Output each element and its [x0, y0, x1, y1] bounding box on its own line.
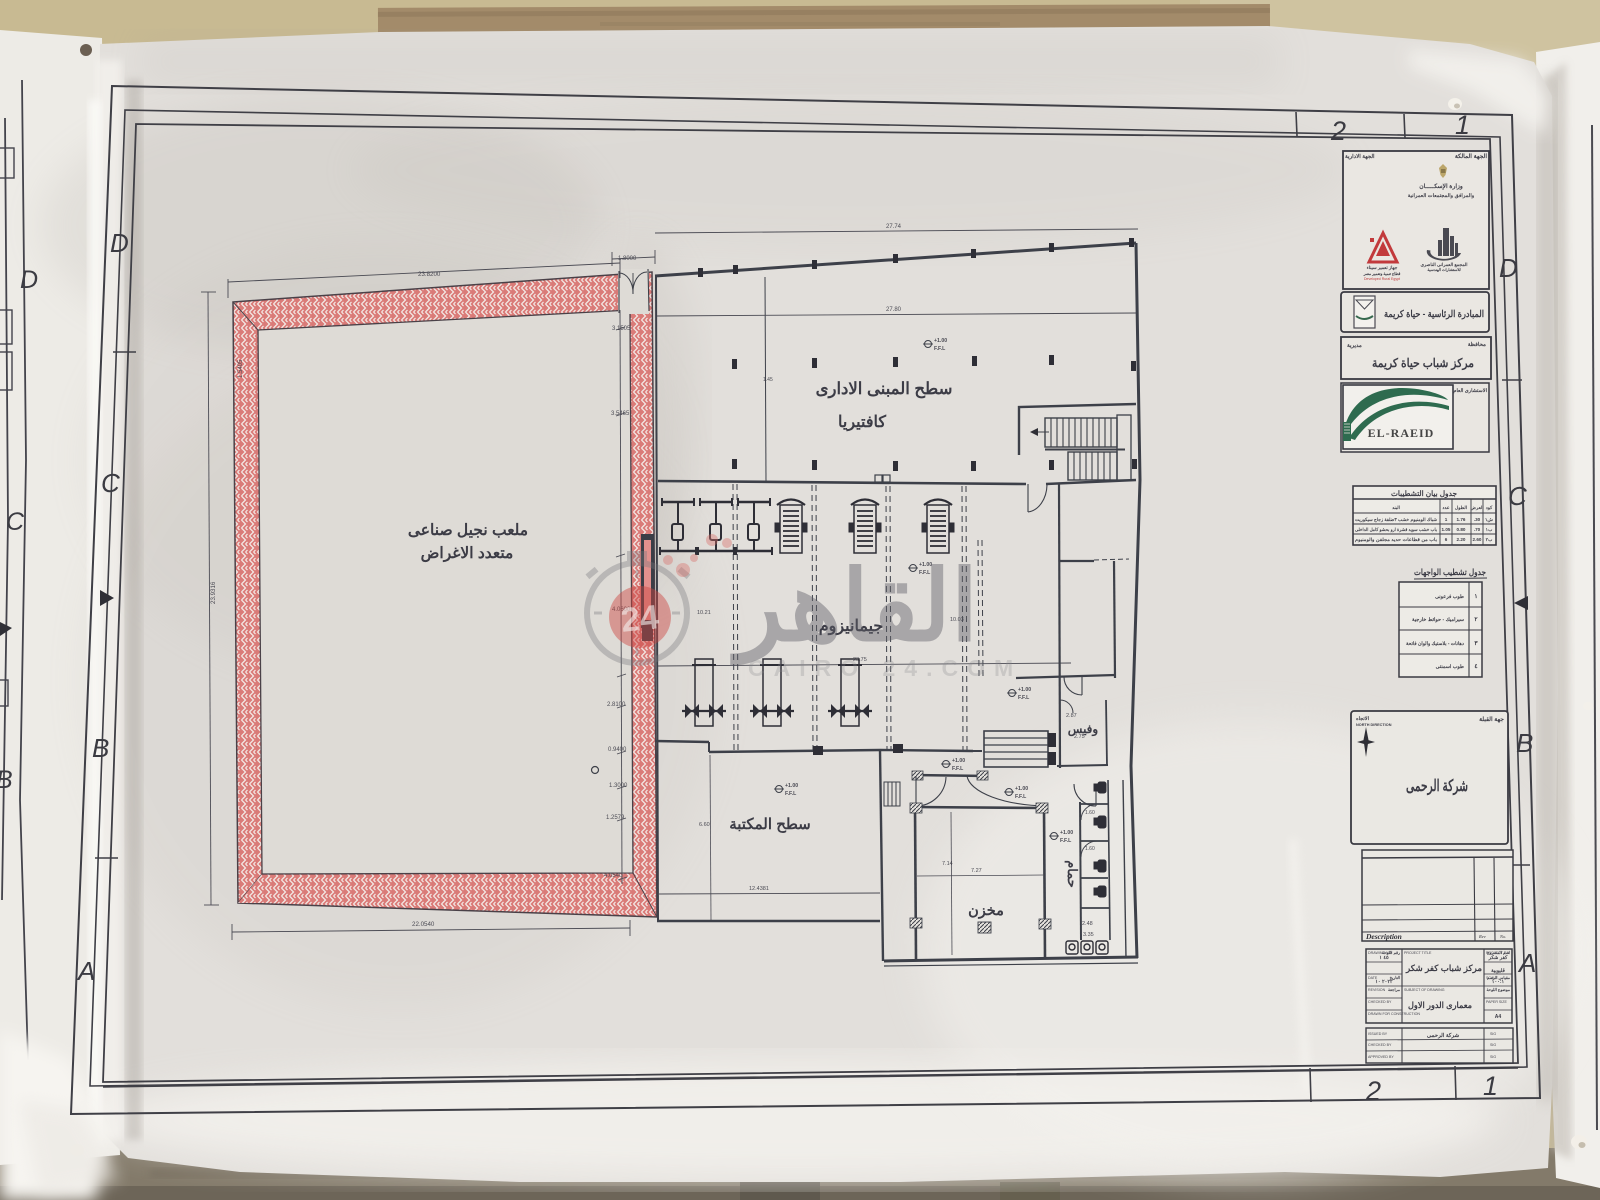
- svg-text:مركز شباب كفر شكر: مركز شباب كفر شكر: [1405, 963, 1482, 974]
- svg-text:PAPER SIZE: PAPER SIZE: [1486, 1000, 1508, 1004]
- svg-text:1: 1: [1455, 110, 1470, 140]
- svg-text:REVISION: REVISION: [1368, 988, 1386, 992]
- svg-text:SIG: SIG: [1490, 1032, 1496, 1036]
- svg-text:0.9400: 0.9400: [608, 747, 627, 753]
- svg-text:+1.00: +1.00: [1015, 786, 1028, 792]
- svg-text:Description: Description: [1365, 932, 1402, 941]
- svg-text:١٠٠:١: ١٠٠:١: [1492, 979, 1504, 985]
- svg-text:القاهر: القاهر: [730, 551, 978, 666]
- svg-text:محافظة: محافظة: [1468, 341, 1486, 348]
- svg-text:الاستشارى العام: الاستشارى العام: [1453, 388, 1487, 394]
- svg-text:2: 2: [1365, 1076, 1381, 1106]
- svg-text:2.75: 2.75: [1074, 734, 1085, 740]
- svg-text:متعدد الاغراض: متعدد الاغراض: [421, 545, 514, 563]
- svg-text:NORTH DIRECTION: NORTH DIRECTION: [1356, 723, 1392, 727]
- svg-text:1.60: 1.60: [1085, 846, 1095, 852]
- svg-text:C: C: [1508, 481, 1527, 511]
- svg-text:ملعب نجيل صناعى: ملعب نجيل صناعى: [408, 522, 528, 539]
- svg-text:F.F.L: F.F.L: [1060, 838, 1072, 844]
- svg-text:F.F.L: F.F.L: [785, 791, 797, 797]
- svg-text:23.8200: 23.8200: [418, 271, 441, 278]
- svg-text:كفر شكر: كفر شكر: [1488, 955, 1508, 961]
- svg-text:١: ١: [1474, 594, 1477, 600]
- svg-text:22.0540: 22.0540: [412, 921, 435, 928]
- svg-text:4.0540: 4.0540: [604, 873, 623, 879]
- svg-text:+1.00: +1.00: [785, 783, 798, 789]
- svg-text:1: 1: [1483, 1071, 1498, 1101]
- svg-text:والمرافق والمجتمعات العمرانية: والمرافق والمجتمعات العمرانية: [1408, 193, 1475, 199]
- svg-text:DRAWN FOR CONSTRUCTION: DRAWN FOR CONSTRUCTION: [1368, 1012, 1420, 1016]
- svg-text:23.9316: 23.9316: [210, 581, 217, 604]
- svg-text:1.2579: 1.2579: [606, 815, 625, 821]
- svg-text:Developed Rural Egypt: Developed Rural Egypt: [1364, 277, 1400, 281]
- svg-text:D: D: [20, 266, 38, 294]
- svg-text:.30: .30: [1474, 517, 1481, 522]
- svg-text:3.35: 3.35: [1083, 932, 1094, 938]
- svg-text:24: 24: [619, 598, 661, 640]
- svg-text:سيراميك - حوائط خارجية: سيراميك - حوائط خارجية: [1412, 617, 1464, 623]
- svg-text:شركة الرحمى: شركة الرحمى: [1427, 1032, 1460, 1039]
- svg-text:12.4381: 12.4381: [749, 886, 769, 892]
- svg-text:سطح المبنى الادارى: سطح المبنى الادارى: [816, 380, 953, 399]
- svg-text:1.05: 1.05: [1442, 527, 1451, 532]
- svg-text:CHECKED BY: CHECKED BY: [1368, 1043, 1392, 1047]
- svg-text:شركة الرحمى: شركة الرحمى: [1406, 778, 1468, 796]
- svg-text:7.14: 7.14: [942, 861, 953, 867]
- svg-text:الجهة الادارية: الجهة الادارية: [1345, 153, 1375, 160]
- svg-text:+1.00: +1.00: [952, 758, 965, 764]
- svg-text:F.F.L: F.F.L: [1015, 794, 1027, 800]
- svg-text:PROJECT TITLE: PROJECT TITLE: [1404, 951, 1432, 955]
- svg-text:A4: A4: [1495, 1014, 1502, 1020]
- svg-text:F.F.L: F.F.L: [934, 346, 946, 352]
- svg-text:مركز شباب حياة كريمة: مركز شباب حياة كريمة: [1372, 356, 1474, 371]
- svg-text:طوب اسمنتى: طوب اسمنتى: [1436, 664, 1464, 670]
- svg-text:D: D: [110, 228, 129, 258]
- svg-text:6.60: 6.60: [699, 822, 710, 828]
- svg-text:الاتجاه: الاتجاه: [1356, 716, 1370, 722]
- svg-text:3.5465: 3.5465: [611, 411, 630, 417]
- svg-text:2.20: 2.20: [1457, 537, 1466, 542]
- svg-text:+1.00: +1.00: [1018, 687, 1031, 693]
- svg-text:A: A: [1517, 948, 1536, 978]
- svg-text:27.74: 27.74: [886, 224, 902, 230]
- svg-text:2.60: 2.60: [1473, 537, 1482, 542]
- svg-text:1.60: 1.60: [1085, 810, 1095, 816]
- svg-text:Rev: Rev: [1478, 934, 1486, 939]
- svg-text:CHECKED BY: CHECKED BY: [1368, 1000, 1392, 1004]
- svg-text:كافتيريا: كافتيريا: [838, 414, 886, 432]
- svg-text:No.: No.: [1499, 934, 1506, 939]
- svg-text:الجهة المالكة: الجهة المالكة: [1455, 153, 1488, 160]
- svg-text:المبادرة الرئاسية - حياة كريمة: المبادرة الرئاسية - حياة كريمة: [1384, 309, 1484, 320]
- svg-text:٤٥ ١: ٤٥ ١: [1379, 955, 1389, 961]
- svg-text:ISSUED BY: ISSUED BY: [1368, 1032, 1388, 1036]
- svg-text:1.76: 1.76: [1457, 517, 1466, 522]
- svg-text:B: B: [0, 766, 13, 794]
- svg-text:2.8100: 2.8100: [607, 702, 626, 708]
- svg-text:1.8000: 1.8000: [618, 256, 637, 262]
- svg-text:SIG: SIG: [1490, 1055, 1496, 1059]
- svg-text:2.48: 2.48: [1082, 921, 1093, 927]
- svg-text:SUBJECT OF DRAWING: SUBJECT OF DRAWING: [1404, 988, 1445, 992]
- svg-text:6: 6: [1445, 537, 1448, 542]
- svg-text:B: B: [92, 733, 109, 763]
- svg-text:.70: .70: [1474, 527, 1481, 532]
- svg-text:SIG: SIG: [1490, 1043, 1496, 1047]
- svg-text:عدد: عدد: [1442, 505, 1449, 510]
- svg-text:2: 2: [1330, 116, 1346, 146]
- svg-text:معمارى الدور الاول: معمارى الدور الاول: [1408, 1000, 1472, 1011]
- svg-text:دهانات - بلاستيك والوان فاتحة: دهانات - بلاستيك والوان فاتحة: [1406, 641, 1465, 647]
- svg-text:B: B: [1516, 728, 1533, 758]
- svg-text:قليوبية: قليوبية: [1491, 968, 1505, 974]
- svg-text:طوب فرعونى: طوب فرعونى: [1435, 594, 1464, 600]
- svg-text:+1.00: +1.00: [934, 338, 947, 344]
- svg-text:حمام: حمام: [1064, 860, 1080, 888]
- svg-text:جدول بيان التشطيبات: جدول بيان التشطيبات: [1391, 489, 1457, 499]
- svg-text:27.80: 27.80: [886, 307, 902, 313]
- svg-text:0.80: 0.80: [1457, 527, 1466, 532]
- svg-text:+1.00: +1.00: [1060, 830, 1073, 836]
- svg-text:C: C: [6, 508, 25, 536]
- svg-text:مخزن: مخزن: [968, 903, 1004, 919]
- svg-text:مديرية: مديرية: [1347, 343, 1362, 349]
- svg-text:٢٠٢٢ ١٠: ٢٠٢٢ ١٠: [1375, 979, 1393, 985]
- svg-text:A: A: [76, 956, 95, 986]
- svg-text:جهة القبلة: جهة القبلة: [1479, 716, 1504, 723]
- svg-text:3.1505: 3.1505: [612, 326, 631, 332]
- svg-text:وزارة الإسكـــــان: وزارة الإسكـــــان: [1419, 183, 1463, 190]
- svg-text:٤: ٤: [1474, 664, 1477, 670]
- svg-text:7.27: 7.27: [971, 868, 982, 874]
- svg-text:CAIRO 24.COM: CAIRO 24.COM: [748, 655, 1022, 681]
- svg-text:1.5405: 1.5405: [238, 359, 244, 378]
- svg-text:سطح المكتبة: سطح المكتبة: [729, 816, 811, 833]
- svg-text:C: C: [101, 468, 120, 498]
- svg-text:APPROVED BY: APPROVED BY: [1368, 1055, 1394, 1059]
- svg-text:F.F.L: F.F.L: [952, 766, 964, 772]
- svg-text:10.21: 10.21: [697, 610, 711, 616]
- svg-text:جدول تشطيب الواجهات: جدول تشطيب الواجهات: [1414, 567, 1487, 578]
- svg-text:1.3000: 1.3000: [609, 783, 628, 789]
- svg-text:EL-RAEID: EL-RAEID: [1368, 426, 1435, 440]
- svg-text:1: 1: [1445, 517, 1448, 522]
- svg-text:F.F.L: F.F.L: [1018, 695, 1030, 701]
- svg-text:D: D: [1499, 253, 1518, 283]
- svg-text:2.87: 2.87: [1066, 713, 1077, 719]
- svg-text:1.45: 1.45: [763, 377, 773, 383]
